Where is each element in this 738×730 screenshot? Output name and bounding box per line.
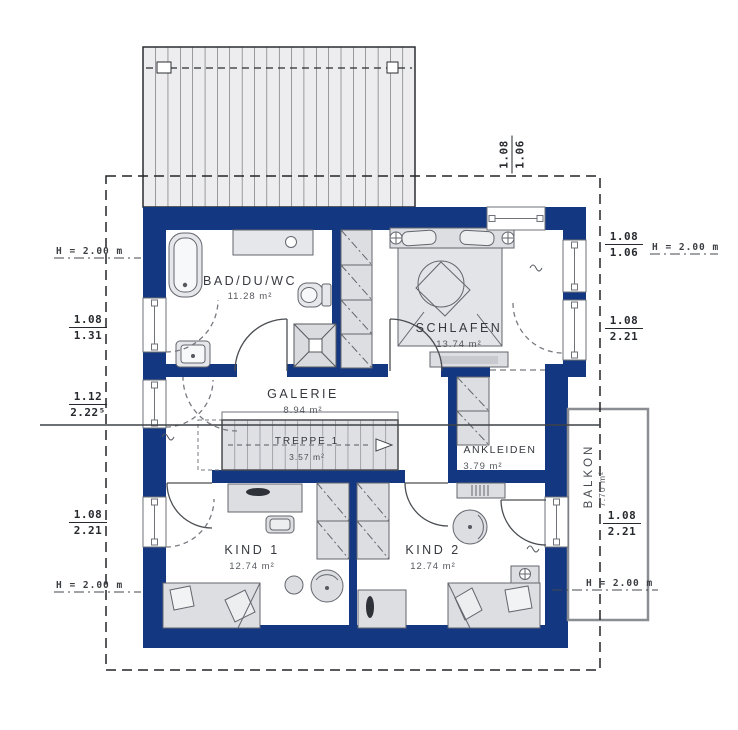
room-label-balkon: BALKON bbox=[583, 440, 595, 512]
wardrobe-kind1 bbox=[317, 483, 349, 559]
room-label-ankleiden: ANKLEIDEN bbox=[463, 444, 536, 456]
dim-window-schlafen: 1.08 1.06 bbox=[598, 230, 650, 259]
door-kind1 bbox=[167, 483, 212, 528]
window-bad bbox=[143, 298, 166, 352]
window-schlafen-top bbox=[487, 207, 545, 230]
balcony-door bbox=[545, 497, 568, 547]
room-label-treppe: TREPPE 1 bbox=[275, 436, 339, 447]
room-label-schlafen: SCHLAFEN bbox=[416, 321, 503, 335]
bathtub bbox=[169, 233, 202, 297]
dim-door-balkon: 1.08 2.21 bbox=[596, 509, 648, 538]
room-area-bad: 11.28 m² bbox=[228, 291, 273, 302]
vanity-counter bbox=[233, 230, 313, 255]
nightstand-kind2 bbox=[511, 566, 539, 583]
window-galerie bbox=[143, 380, 166, 428]
window-kind1 bbox=[143, 497, 166, 547]
room-area-ankleiden: 3.79 m² bbox=[463, 461, 502, 472]
shower bbox=[294, 324, 336, 367]
stool-kind1 bbox=[285, 576, 303, 594]
dim-window-schlafen2: 1.08 2.21 bbox=[598, 314, 650, 343]
dim-window-bad: 1.08 1.31 bbox=[62, 313, 114, 342]
desk-kind1 bbox=[228, 484, 302, 533]
round-chair-kind1 bbox=[311, 570, 343, 602]
wardrobe-kind2 bbox=[357, 483, 389, 559]
toilet bbox=[298, 283, 331, 307]
pillow bbox=[505, 586, 532, 612]
bed-kind1 bbox=[163, 583, 260, 628]
window-swing-schlafen bbox=[513, 303, 563, 353]
window-schlafen-right-1 bbox=[563, 240, 586, 292]
room-area-kind2: 12.74 m² bbox=[410, 561, 456, 572]
shelf-kind2 bbox=[457, 483, 505, 498]
room-label-kind2: KIND 2 bbox=[405, 543, 460, 557]
desk-chair-icon bbox=[246, 488, 270, 496]
wardrobe-bad-schlafen bbox=[341, 230, 372, 368]
height-label-right-top: H = 2.00 m bbox=[652, 242, 719, 253]
floorplan-canvas bbox=[0, 0, 738, 730]
height-label-left-top: H = 2.00 m bbox=[56, 246, 123, 257]
door-balkon bbox=[501, 500, 546, 545]
door-kind2 bbox=[405, 483, 448, 526]
room-area-balkon: 7.70 m² bbox=[597, 464, 607, 514]
height-label-left-bottom: H = 2.00 m bbox=[56, 580, 123, 591]
pillow bbox=[170, 586, 194, 610]
room-area-treppe: 3.57 m² bbox=[289, 452, 325, 462]
floorplan-page: BAD/DU/WC 11.28 m² SCHLAFEN 13.74 m² GAL… bbox=[0, 0, 738, 730]
round-chair-kind2 bbox=[453, 510, 487, 544]
room-label-kind1: KIND 1 bbox=[224, 543, 279, 557]
bed-kind2 bbox=[448, 583, 540, 628]
roof-marker-right bbox=[387, 62, 398, 73]
desk-kind2 bbox=[358, 590, 406, 628]
desk-chair-icon bbox=[366, 596, 374, 618]
room-area-kind1: 12.74 m² bbox=[229, 561, 275, 572]
wardrobe-ankleiden bbox=[457, 377, 489, 445]
roof-overhang bbox=[143, 47, 415, 207]
room-area-galerie: 8.94 m² bbox=[283, 405, 322, 416]
dim-window-kind1: 1.08 2.21 bbox=[62, 508, 114, 537]
dim-rotated-top: 1.08 1.06 bbox=[498, 129, 527, 181]
room-label-galerie: GALERIE bbox=[267, 387, 339, 401]
dim-window-galerie: 1.12 2.22⁵ bbox=[62, 390, 114, 419]
room-label-bad: BAD/DU/WC bbox=[203, 274, 297, 288]
window-schlafen-right-2 bbox=[563, 300, 586, 360]
room-area-schlafen: 13.74 m² bbox=[436, 339, 482, 350]
height-label-right-bottom: H = 2.00 m bbox=[586, 578, 653, 589]
door-bad bbox=[235, 319, 287, 371]
roof-marker-left bbox=[157, 62, 171, 73]
